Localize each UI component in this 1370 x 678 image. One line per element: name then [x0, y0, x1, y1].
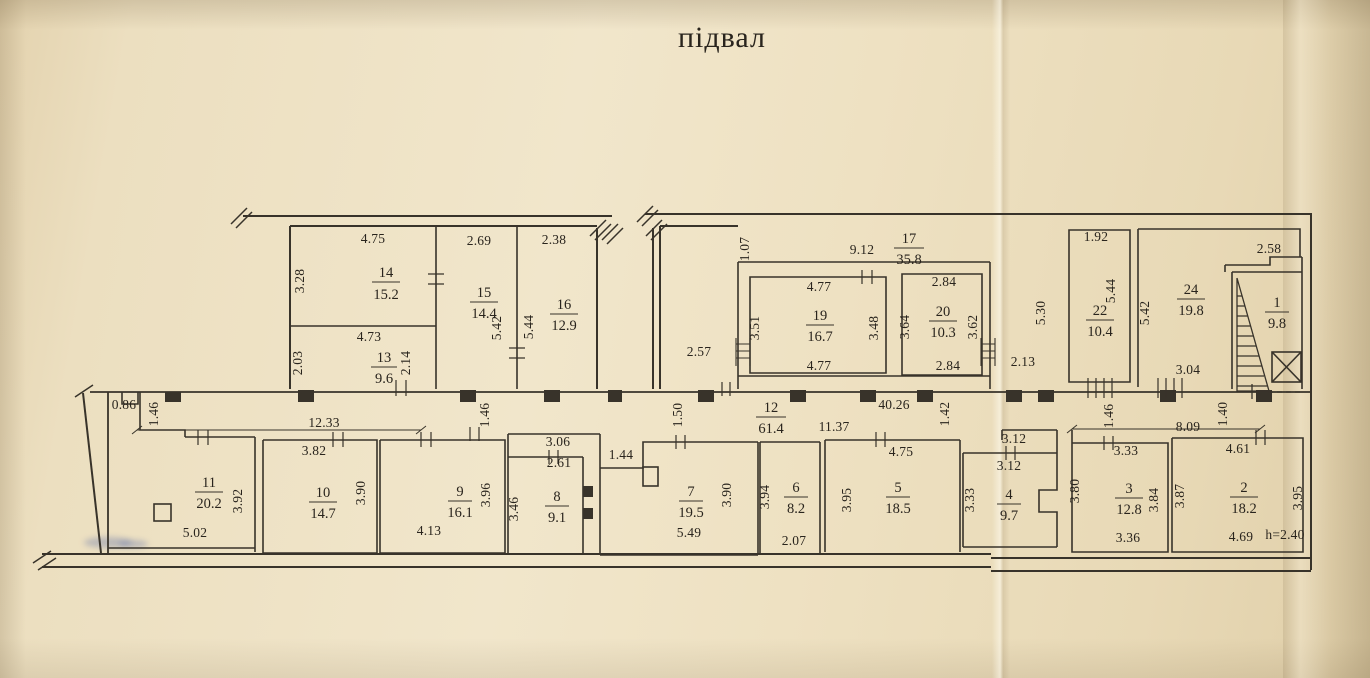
corridor-dim-146b: 1.46	[477, 403, 492, 427]
open-area-dim: 5.30	[1033, 301, 1048, 325]
room14-top-dim: 4.75	[361, 231, 385, 246]
room15-right-dim: 5.42	[489, 316, 504, 340]
room13-right-dim: 2.14	[398, 351, 413, 375]
room11-right-dim: 3.92	[230, 489, 245, 513]
room9-bottom-dim: 4.13	[417, 523, 441, 538]
room19-left-dim: 3.51	[747, 316, 762, 340]
room3-right-dim: 3.84	[1146, 488, 1161, 512]
corridor-dim-150: 1.50	[670, 403, 685, 427]
room1-area: 9.8	[1268, 316, 1286, 332]
room11-number: 11	[202, 475, 216, 491]
break-marks	[33, 206, 667, 570]
room24-bottom-dim: 3.04	[1176, 362, 1200, 377]
room2-number: 2	[1240, 480, 1247, 496]
room16-area: 12.9	[551, 318, 576, 334]
room22-number: 22	[1093, 303, 1108, 319]
room2-height-note: h=2.40	[1265, 527, 1304, 542]
room10-right-dim: 3.90	[353, 481, 368, 505]
room7-area: 19.5	[678, 505, 703, 521]
corridor-dim-140: 1.40	[1215, 402, 1230, 426]
room8-left-dim: 3.46	[506, 497, 521, 521]
room4-top2-dim: 3.12	[997, 458, 1021, 473]
room20-bottom-dim: 2.84	[936, 358, 960, 373]
room19-right-dim: 3.48	[866, 316, 881, 340]
room9-area: 16.1	[447, 505, 472, 521]
room9-number: 9	[456, 484, 463, 500]
room7-bottom-dim: 5.49	[677, 525, 701, 540]
room8-number: 8	[553, 489, 560, 505]
room22-area: 10.4	[1087, 324, 1113, 340]
room19-bottom-dim: 4.77	[807, 358, 831, 373]
room20-left-dim: 3.64	[897, 315, 912, 339]
room17-number: 17	[902, 231, 917, 247]
room10-area: 14.7	[310, 506, 335, 522]
room2-bottom-dim: 4.69	[1229, 529, 1253, 544]
room2-right-dim: 3.95	[1290, 486, 1305, 510]
room24-number: 24	[1184, 282, 1199, 298]
corridor-dim-1233: 12.33	[308, 415, 339, 430]
room5-top-dim: 4.75	[889, 444, 913, 459]
scanned-floor-plan-page: підвал	[0, 0, 1370, 678]
room5-number: 5	[894, 480, 901, 496]
stairs-icon	[1237, 278, 1269, 399]
room15-top-dim: 2.69	[467, 233, 491, 248]
room16-number: 16	[557, 297, 572, 313]
room11-bottom-dim: 5.02	[183, 525, 207, 540]
room7-recess-dim: 1.44	[609, 447, 633, 462]
room13-left-dim: 2.03	[290, 351, 305, 375]
corridor-dim-142: 1.42	[937, 402, 952, 426]
room14-number: 14	[379, 265, 394, 281]
room13-number: 13	[377, 350, 392, 366]
corridor-dim-086: 0.86	[112, 397, 136, 412]
room10-number: 10	[316, 485, 331, 501]
room4-top-dim: 3.12	[1002, 431, 1026, 446]
room17-area: 35.8	[896, 252, 921, 268]
corridor-dim-1137: 11.37	[819, 419, 850, 434]
room17-top-dim: 9.12	[850, 242, 874, 257]
corridor-area: 61.4	[758, 421, 784, 437]
room3-number: 3	[1125, 481, 1132, 497]
room8-top2-dim: 2.61	[547, 455, 571, 470]
room2-top-dim: 4.61	[1226, 441, 1250, 456]
room14-left-dim: 3.28	[292, 269, 307, 293]
floor-plan-drawing: підвал	[0, 0, 1370, 678]
room2-area: 18.2	[1231, 501, 1256, 517]
room19-top-dim: 4.77	[807, 279, 831, 294]
room6-number: 6	[792, 480, 799, 496]
room1-number: 1	[1273, 295, 1280, 311]
room22-top-dim: 1.92	[1084, 229, 1108, 244]
room19-area: 16.7	[807, 329, 832, 345]
gap-right-dim: 2.13	[1011, 354, 1035, 369]
room20-right-dim: 3.62	[965, 315, 980, 339]
room13-area: 9.6	[375, 371, 393, 387]
room10-top-dim: 3.82	[302, 443, 326, 458]
room2-left-dim: 3.87	[1172, 484, 1187, 508]
room5-left-dim: 3.95	[839, 488, 854, 512]
corridor-dim-146c: 1.46	[1101, 404, 1116, 428]
room19-number: 19	[813, 308, 828, 324]
room16-left-dim: 5.44	[521, 315, 536, 339]
room9-right-dim: 3.96	[478, 483, 493, 507]
room11-area: 20.2	[196, 496, 221, 512]
room16-top-dim: 2.38	[542, 232, 566, 247]
room7-number: 7	[687, 484, 694, 500]
corridor-dim-809: 8.09	[1176, 419, 1200, 434]
room3-top-dim: 3.33	[1114, 443, 1138, 458]
room5-area: 18.5	[885, 501, 910, 517]
room24-left-dim: 5.42	[1137, 301, 1152, 325]
dimension-lines	[132, 425, 1265, 434]
shaft-icon	[1268, 352, 1303, 392]
room8-area: 9.1	[548, 510, 566, 526]
room15-number: 15	[477, 285, 492, 301]
room6-bottom-dim: 2.07	[782, 533, 806, 548]
room20-number: 20	[936, 304, 951, 320]
gap-left-dim: 2.57	[687, 344, 711, 359]
room6-left-dim: 3.94	[757, 485, 772, 509]
room3-left-dim: 3.80	[1067, 479, 1082, 503]
room17-left-dim: 1.07	[737, 237, 752, 261]
room20-area: 10.3	[930, 325, 955, 341]
room6-area: 8.2	[787, 501, 805, 517]
room13-top-dim: 4.73	[357, 329, 381, 344]
room4-left-dim: 3.33	[962, 488, 977, 512]
room8-top-dim: 3.06	[546, 434, 570, 449]
corridor-dim-146a: 1.46	[146, 402, 161, 426]
room20-top-dim: 2.84	[932, 274, 956, 289]
room7-right-dim: 3.90	[719, 483, 734, 507]
page-title: підвал	[678, 21, 766, 54]
room1-width-dim: 2.58	[1257, 241, 1281, 256]
room22-right-dim: 5.44	[1103, 279, 1118, 303]
room4-area: 9.7	[1000, 508, 1018, 524]
room3-area: 12.8	[1116, 502, 1141, 518]
room24-area: 19.8	[1178, 303, 1203, 319]
corridor-number: 12	[764, 400, 779, 416]
corridor-dim-4026: 40.26	[878, 397, 909, 412]
room3-bottom-dim: 3.36	[1116, 530, 1140, 545]
room14-area: 15.2	[373, 287, 398, 303]
room4-number: 4	[1005, 487, 1013, 503]
